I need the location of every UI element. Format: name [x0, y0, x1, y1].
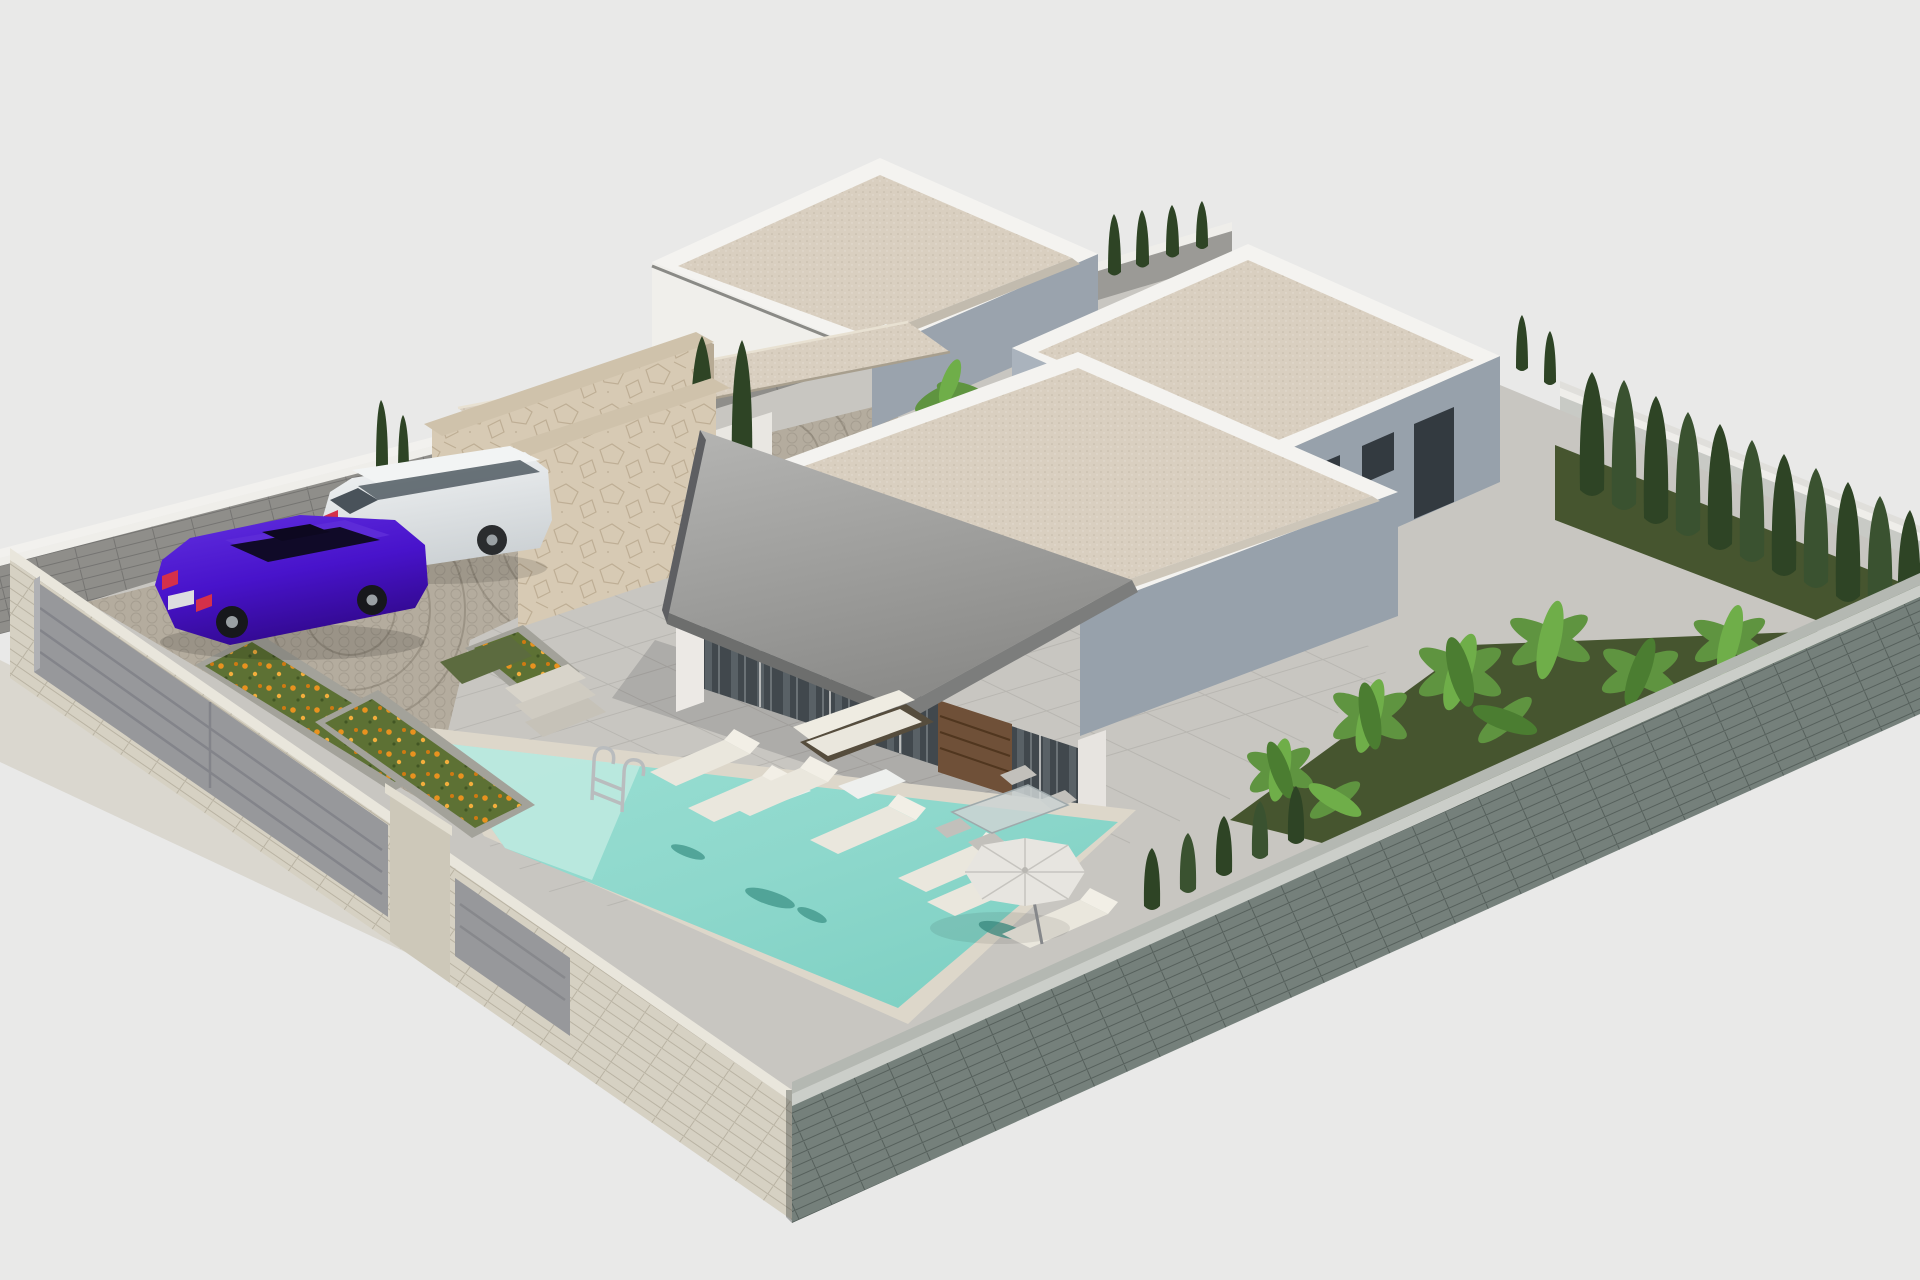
render-canvas — [0, 0, 1920, 1280]
parasol-shadow — [930, 912, 1070, 944]
villa-render — [0, 0, 1920, 1280]
wall-corner-shade — [786, 1090, 792, 1223]
